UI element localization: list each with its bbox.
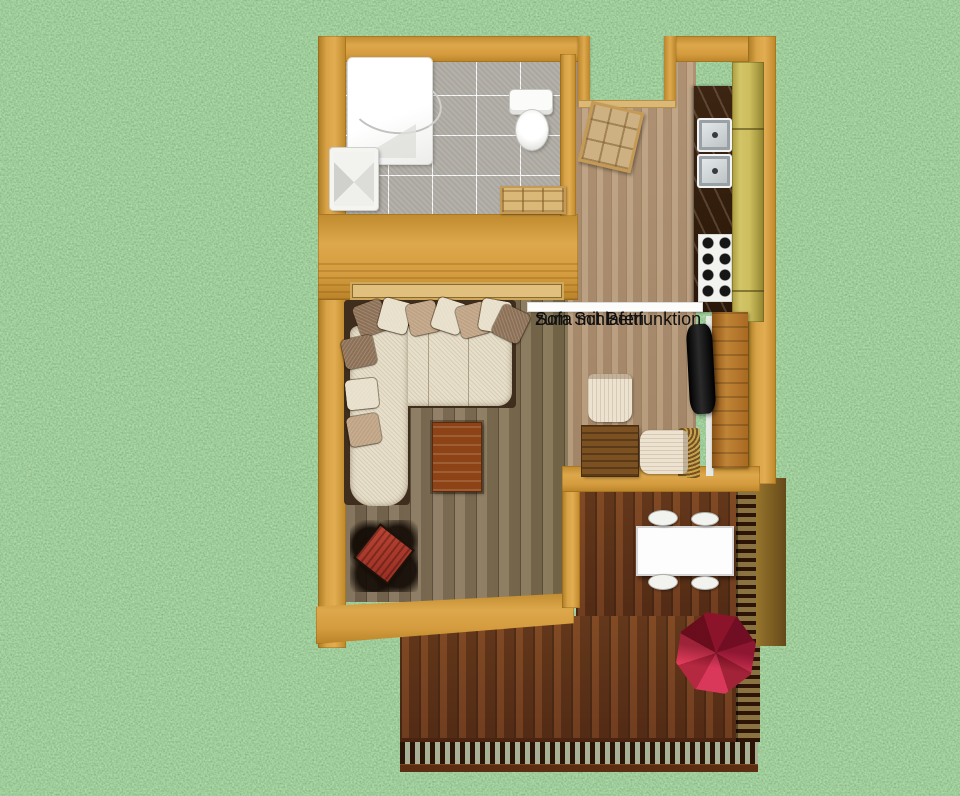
dining-chair xyxy=(691,576,719,590)
dining-chair xyxy=(648,574,678,590)
sink-drain xyxy=(712,168,718,174)
tv-sideboard xyxy=(712,312,748,468)
annotation-line-2: zum Schlafen xyxy=(535,307,644,331)
small-table xyxy=(582,426,638,476)
door-frame-left xyxy=(578,36,590,106)
toilet-bowl xyxy=(516,110,548,150)
basin-facets xyxy=(334,152,374,206)
dining-chair xyxy=(691,512,719,526)
kitchen-tall-cabinets xyxy=(732,62,764,322)
shower-curtain-line xyxy=(347,71,445,138)
cabinet-seam xyxy=(732,128,764,130)
annotation-label: Sofa mit Bettfunktion zum Schlafen xyxy=(527,302,703,312)
dining-chair xyxy=(648,510,678,526)
door-frame-right xyxy=(664,36,676,106)
cooktop xyxy=(698,234,732,302)
deck-outer-wall xyxy=(756,478,786,646)
wash-basin xyxy=(330,148,378,210)
sofa-pillow xyxy=(346,412,383,447)
bathroom-door xyxy=(500,186,566,214)
chair xyxy=(588,374,632,422)
deck-railing-bottom xyxy=(400,738,758,772)
cabinet-seam xyxy=(732,290,764,292)
tv xyxy=(686,323,717,414)
window-sill xyxy=(350,282,564,300)
coffee-table xyxy=(432,422,482,492)
sink-drain xyxy=(712,132,718,138)
wall-living-deck xyxy=(562,486,580,608)
chair xyxy=(640,430,688,474)
deck-rail-cap xyxy=(400,764,758,772)
entry-alcove-grass xyxy=(588,38,666,102)
floorplan-scene: Sofa mit Bettfunktion zum Schlafen xyxy=(0,0,960,796)
dining-table xyxy=(636,526,734,576)
kitchen-sink-second xyxy=(697,154,732,188)
kitchen-sink xyxy=(697,118,732,152)
sofa-pillow xyxy=(345,377,380,410)
